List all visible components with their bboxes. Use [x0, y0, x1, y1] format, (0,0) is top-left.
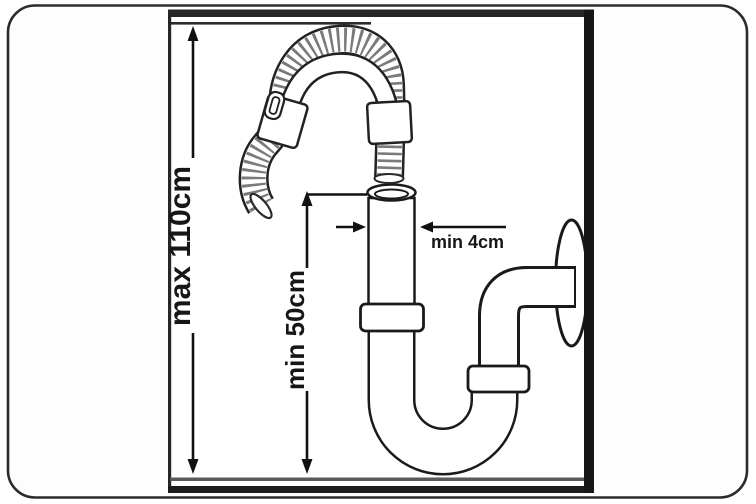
- min-diameter-label: min 4cm: [431, 232, 504, 252]
- ceiling-reference-line: [171, 22, 371, 25]
- min-height-label: min 50cm: [280, 270, 310, 390]
- floor-line: [170, 478, 586, 482]
- trap-coupling-nut: [468, 366, 529, 392]
- hose-end-right: [375, 174, 404, 183]
- standpipe-opening: [375, 190, 408, 199]
- standpipe: [369, 198, 415, 312]
- max-height-label: max 110cm: [164, 166, 197, 326]
- panel-wall-bottom: [168, 486, 594, 493]
- hose-guide-collar-right: [367, 101, 412, 144]
- installation-diagram: max 110cm min 50cm min 4cm: [0, 0, 756, 504]
- panel-wall-top: [168, 10, 594, 18]
- installation-diagram-card: max 110cm min 50cm min 4cm: [0, 0, 756, 504]
- panel-wall-right: [584, 10, 594, 494]
- standpipe-coupling-nut: [361, 304, 424, 331]
